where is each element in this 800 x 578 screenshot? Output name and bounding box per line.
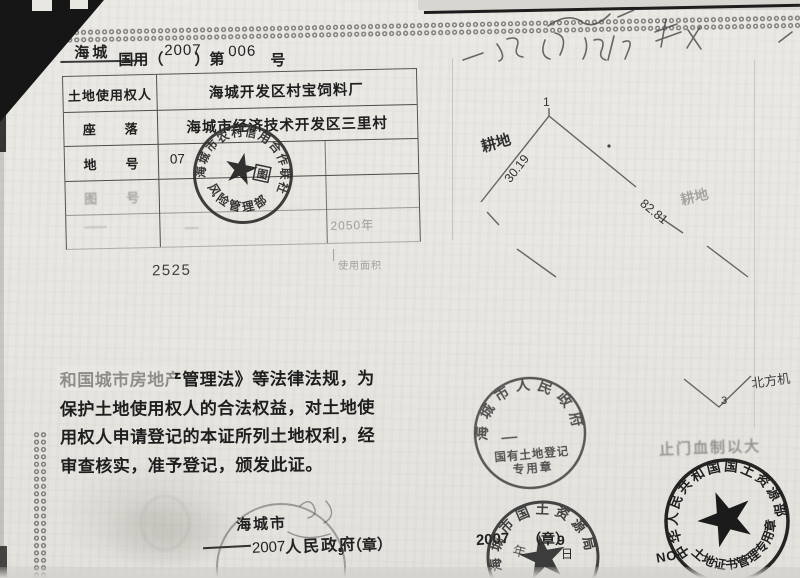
scanned-land-certificate: 海城 国用（ 2007 ）第 006 号 土地使用权人 海城开发区村宝饲料厂 座…: [0, 0, 800, 578]
boundary-corner: [684, 376, 751, 407]
boundary-dash: [487, 212, 499, 225]
binding-notch: [70, 0, 88, 9]
binding-notch: [32, 0, 52, 11]
boundary-dash: [517, 249, 556, 277]
scan-edge: [0, 567, 800, 578]
vertex-label-1: 1: [543, 95, 550, 109]
boundary-edge: [549, 116, 636, 187]
edge-length-right: 82.81: [637, 196, 670, 227]
handwritten-note: [463, 10, 792, 61]
land-type-right: 耕地: [679, 186, 710, 208]
scan-edge: [0, 148, 4, 550]
land-type-left: 耕地: [479, 130, 513, 156]
handwritten-scribble: [288, 501, 332, 538]
edge-length-left: 30.19: [502, 152, 532, 185]
parcel-sketch-overlay: 1 3 30.19 82.81 耕地 耕地 北方机: [0, 0, 800, 578]
survey-dot: [607, 144, 610, 147]
vertex-label-3: 3: [721, 395, 727, 407]
neighbor-label: 北方机: [750, 371, 791, 391]
boundary-dash: [707, 246, 748, 277]
